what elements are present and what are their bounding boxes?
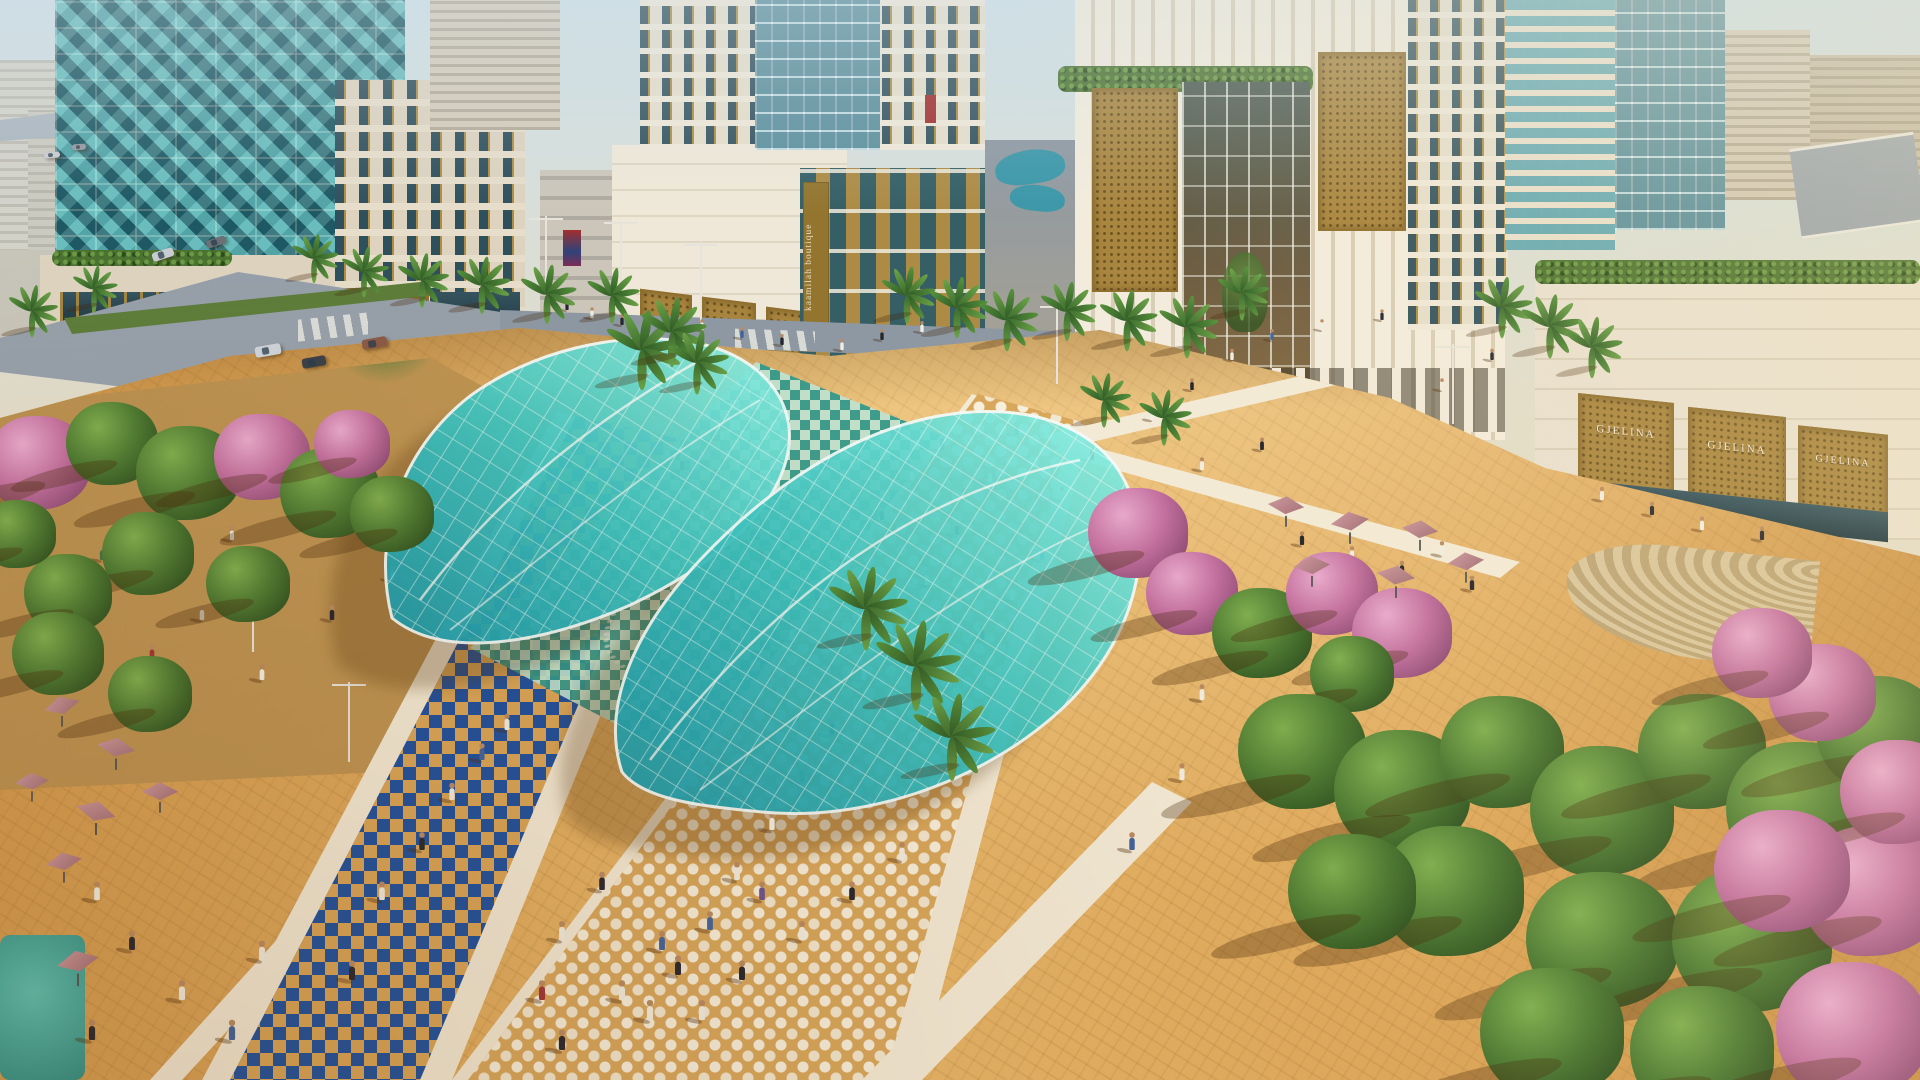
palm-tree	[948, 732, 956, 772]
palm-frond	[904, 295, 911, 324]
palm-frond	[419, 280, 425, 307]
tree-green	[0, 500, 56, 568]
umbrella-canopy	[94, 734, 139, 761]
tree-green	[350, 476, 434, 552]
tree-pink-blossom	[314, 410, 390, 478]
tree-canopy	[206, 546, 290, 622]
palm-tree	[1064, 308, 1069, 335]
umbrella-canopy	[1328, 509, 1372, 535]
tree-green	[108, 656, 192, 732]
umbrella-canopy	[140, 782, 180, 801]
umbrella-canopy	[43, 849, 85, 875]
tree-pink-blossom	[1840, 740, 1920, 844]
palm-tree	[1102, 397, 1107, 422]
palm-tree	[30, 308, 35, 332]
tree-pink-blossom	[1712, 608, 1812, 698]
palm-tree	[92, 286, 96, 308]
umbrella-canopy	[1292, 555, 1333, 577]
palm-frond	[1588, 347, 1595, 378]
palm-frond	[1101, 400, 1107, 427]
palm-frond	[311, 258, 317, 283]
palm-tree	[312, 256, 316, 278]
palm-tree	[1124, 317, 1130, 345]
palm-frond	[1123, 320, 1130, 351]
tree-green	[1630, 986, 1774, 1080]
cafe-umbrella	[42, 693, 82, 720]
palm-tree	[954, 304, 960, 332]
palm-frond	[1183, 327, 1190, 359]
umbrella-canopy	[1265, 495, 1306, 518]
palm-tree	[904, 292, 909, 318]
cafe-umbrella	[13, 769, 50, 795]
palm-tree	[544, 291, 549, 318]
cafe-umbrella	[1446, 549, 1486, 576]
palm-frond	[1498, 307, 1505, 338]
palm-tree	[1184, 323, 1190, 352]
umbrella-canopy	[1374, 563, 1418, 589]
tree-canopy	[1714, 810, 1850, 932]
cafe-umbrella	[1329, 508, 1371, 537]
palm-frond	[91, 289, 96, 313]
palm-frond	[1239, 293, 1245, 320]
umbrella-canopy	[53, 946, 103, 978]
tree-canopy	[1840, 740, 1920, 844]
umbrella-canopy	[72, 796, 120, 828]
flora-layer	[0, 0, 1920, 1080]
palm-tree	[1161, 414, 1166, 440]
tree-canopy	[350, 476, 434, 552]
plaza-rendering: SAPHIR SAPHIR SAPHIR kaamilah boutique	[0, 0, 1920, 1080]
tree-canopy	[0, 500, 56, 568]
palm-tree	[479, 282, 484, 308]
tree-canopy	[12, 612, 104, 695]
cafe-umbrella	[95, 734, 137, 763]
tree-pink-blossom	[1714, 810, 1850, 932]
cafe-umbrella	[1375, 562, 1417, 591]
palm-frond	[29, 311, 35, 337]
palm-frond	[947, 737, 957, 781]
palm-frond	[1064, 311, 1071, 341]
tree-canopy	[102, 512, 194, 595]
tree-canopy	[1480, 968, 1624, 1080]
palm-frond	[637, 350, 646, 390]
tree-green	[102, 512, 194, 595]
palm-tree	[1589, 344, 1595, 372]
palm-tree	[1240, 290, 1245, 315]
palm-frond	[911, 666, 921, 712]
palm-tree	[912, 660, 920, 702]
palm-frond	[479, 285, 486, 314]
palm-tree	[1499, 304, 1505, 332]
palm-tree	[362, 269, 367, 292]
tree-green	[1288, 834, 1416, 949]
palm-tree	[609, 292, 614, 318]
palm-frond	[861, 608, 871, 650]
cafe-umbrella	[55, 946, 101, 978]
umbrella-canopy	[13, 771, 52, 793]
palm-tree	[1547, 323, 1553, 352]
tree-canopy	[1776, 962, 1920, 1080]
umbrella-canopy	[1445, 550, 1486, 573]
cafe-umbrella	[74, 797, 118, 827]
palm-frond	[609, 296, 615, 324]
tree-pink-blossom	[1776, 962, 1920, 1080]
tree-canopy	[1630, 986, 1774, 1080]
palm-tree	[1004, 316, 1010, 345]
cafe-umbrella	[140, 779, 180, 806]
tree-green	[206, 546, 290, 622]
palm-frond	[1546, 326, 1553, 358]
tree-green	[1480, 968, 1624, 1080]
cafe-umbrella	[1400, 517, 1440, 544]
palm-tree	[694, 359, 700, 388]
tree-green	[12, 612, 104, 695]
umbrella-canopy	[40, 691, 83, 720]
palm-tree	[862, 604, 870, 642]
tree-canopy	[314, 410, 390, 478]
palm-tree	[420, 277, 425, 302]
palm-frond	[544, 294, 551, 324]
palm-frond	[953, 307, 960, 338]
cafe-umbrella	[1266, 493, 1306, 520]
tree-canopy	[108, 656, 192, 732]
palm-frond	[693, 362, 700, 394]
cafe-umbrella	[44, 849, 84, 876]
palm-frond	[1161, 418, 1167, 446]
umbrella-canopy	[1399, 518, 1440, 541]
palm-frond	[1003, 320, 1010, 352]
palm-frond	[361, 272, 367, 297]
tree-canopy	[1712, 608, 1812, 698]
cafe-umbrella	[1292, 553, 1332, 580]
tree-canopy	[1288, 834, 1416, 949]
